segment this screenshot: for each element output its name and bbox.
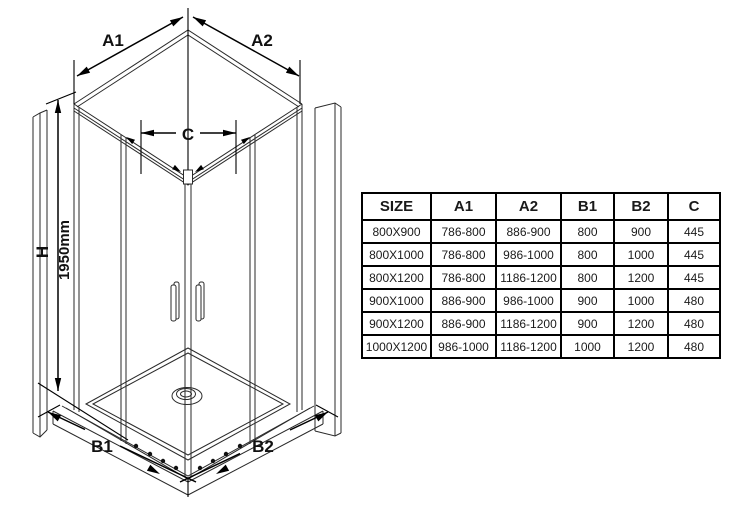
table-row: 900X1000 886-900 986-1000 900 1000 480 (362, 289, 720, 312)
table-cell: 445 (668, 220, 720, 243)
drain (172, 388, 202, 405)
table-cell: 986-1000 (496, 289, 561, 312)
table-cell: 786-800 (431, 243, 496, 266)
table-cell: 445 (668, 243, 720, 266)
size-dimension-table: SIZE A1 A2 B1 B2 C 800X900 786-800 886-9… (361, 192, 721, 359)
table-cell: 800X900 (362, 220, 431, 243)
table-cell: 886-900 (431, 289, 496, 312)
table-row: 800X1200 786-800 1186-1200 800 1200 445 (362, 266, 720, 289)
table-cell: 480 (668, 312, 720, 335)
dimension-label-c: C (182, 125, 194, 144)
right-wall (315, 103, 341, 436)
table-cell: 1000 (561, 335, 614, 358)
col-header-a1: A1 (431, 193, 496, 220)
table-cell: 1200 (614, 335, 668, 358)
col-header-a2: A2 (496, 193, 561, 220)
table-header-row: SIZE A1 A2 B1 B2 C (362, 193, 720, 220)
table-cell: 445 (668, 266, 720, 289)
table-row: 800X1000 786-800 986-1000 800 1000 445 (362, 243, 720, 266)
col-header-b2: B2 (614, 193, 668, 220)
dimension-label-height-mm: 1950mm (56, 220, 73, 280)
dimension-label-a1: A1 (102, 31, 124, 50)
table-cell: 1000X1200 (362, 335, 431, 358)
table-cell: 800X1200 (362, 266, 431, 289)
table-cell: 900X1000 (362, 289, 431, 312)
table-cell: 986-1000 (496, 243, 561, 266)
table-cell: 786-800 (431, 220, 496, 243)
table-cell: 900X1200 (362, 312, 431, 335)
table-cell: 480 (668, 335, 720, 358)
table-cell: 1200 (614, 266, 668, 289)
table-row: 900X1200 886-900 1186-1200 900 1200 480 (362, 312, 720, 335)
table-cell: 900 (614, 220, 668, 243)
table-cell: 900 (561, 289, 614, 312)
table-cell: 1000 (614, 289, 668, 312)
table-cell: 800 (561, 220, 614, 243)
table-cell: 1186-1200 (496, 266, 561, 289)
dimension-label-a2: A2 (251, 31, 273, 50)
col-header-b1: B1 (561, 193, 614, 220)
shower-enclosure-spec-sheet: A1 A2 C H 1950mm B1 B2 SIZE A1 A2 B1 B2 … (0, 0, 742, 500)
table-cell: 800 (561, 266, 614, 289)
table-cell: 480 (668, 289, 720, 312)
col-header-size: SIZE (362, 193, 431, 220)
door-handles (171, 282, 204, 321)
table-cell: 1200 (614, 312, 668, 335)
table-cell: 800X1000 (362, 243, 431, 266)
dimension-label-b2: B2 (252, 437, 274, 456)
table-cell: 900 (561, 312, 614, 335)
table-cell: 886-900 (431, 312, 496, 335)
extension-lines (38, 8, 338, 497)
table-cell: 1186-1200 (496, 312, 561, 335)
dimension-label-b1: B1 (91, 437, 113, 456)
table-cell: 786-800 (431, 266, 496, 289)
table-row: 1000X1200 986-1000 1186-1200 1000 1200 4… (362, 335, 720, 358)
shower-tray (53, 348, 323, 495)
dimension-label-h: H (33, 246, 52, 258)
table-cell: 886-900 (496, 220, 561, 243)
center-corner-post (184, 170, 193, 477)
table-cell: 986-1000 (431, 335, 496, 358)
table-cell: 1186-1200 (496, 335, 561, 358)
table-cell: 800 (561, 243, 614, 266)
table-cell: 1000 (614, 243, 668, 266)
dimension-line-b2-left (180, 454, 240, 482)
col-header-c: C (668, 193, 720, 220)
table-row: 800X900 786-800 886-900 800 900 445 (362, 220, 720, 243)
